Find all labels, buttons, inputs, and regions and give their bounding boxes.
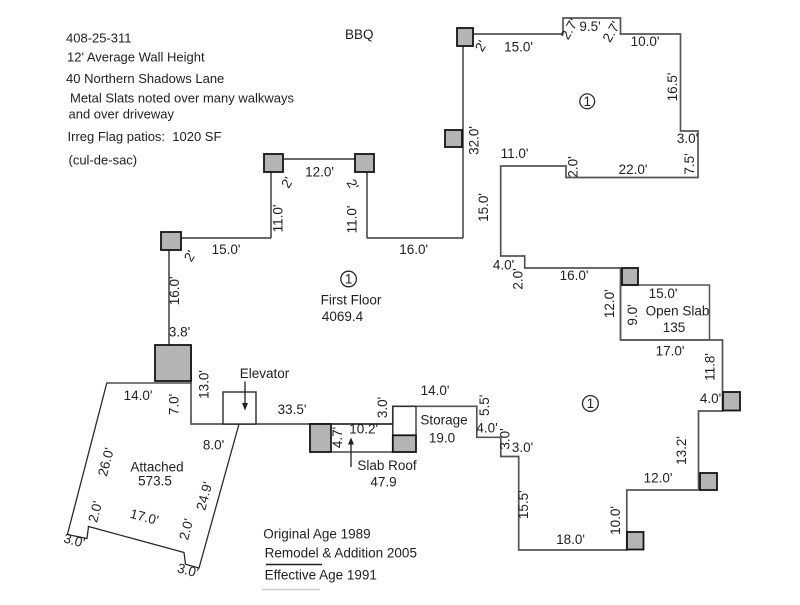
svg-text:13.0': 13.0' (197, 370, 212, 399)
svg-text:18.0': 18.0' (556, 532, 585, 547)
svg-text:40 Northern Shadows Lane: 40 Northern Shadows Lane (66, 71, 224, 86)
svg-text:135: 135 (663, 320, 686, 335)
svg-text:12.0': 12.0' (644, 471, 673, 486)
svg-text:Elevator: Elevator (240, 366, 290, 381)
svg-text:Effective Age 1991: Effective Age 1991 (265, 568, 377, 583)
svg-text:408-25-311: 408-25-311 (66, 31, 132, 46)
svg-text:15.5': 15.5' (516, 490, 531, 519)
svg-text:10.2': 10.2' (349, 422, 378, 437)
svg-text:Slab Roof: Slab Roof (357, 458, 417, 473)
svg-text:16.0': 16.0' (167, 276, 182, 305)
svg-text:3.0': 3.0' (512, 440, 533, 455)
svg-text:7.5': 7.5' (682, 153, 697, 174)
svg-text:11.0': 11.0' (501, 146, 529, 161)
svg-text:Irreg Flag patios: 1020 SF: Irreg Flag patios: 1020 SF (68, 129, 222, 144)
svg-text:3.8': 3.8' (169, 325, 190, 340)
svg-text:14.0': 14.0' (421, 383, 450, 398)
svg-text:2.0': 2.0' (511, 268, 526, 289)
svg-text:12.0': 12.0' (305, 165, 334, 180)
svg-text:10.0': 10.0' (608, 506, 623, 535)
svg-text:1: 1 (583, 94, 591, 109)
svg-text:16.0': 16.0' (560, 268, 589, 283)
svg-text:9.0': 9.0' (625, 304, 640, 325)
svg-text:(cul-de-sac): (cul-de-sac) (69, 153, 138, 168)
svg-text:4.7': 4.7' (330, 427, 345, 448)
svg-text:1: 1 (587, 396, 595, 411)
svg-text:4.0': 4.0' (476, 421, 497, 436)
svg-text:13.2': 13.2' (674, 436, 689, 465)
svg-text:47.9: 47.9 (370, 475, 396, 490)
svg-text:8.0': 8.0' (203, 438, 224, 453)
svg-text:2.0': 2.0' (566, 156, 581, 177)
svg-text:4.0': 4.0' (700, 391, 721, 406)
svg-text:17.0': 17.0' (656, 344, 685, 359)
svg-text:10.0': 10.0' (631, 34, 660, 49)
svg-text:15.0': 15.0' (504, 40, 533, 55)
svg-text:3.0': 3.0' (677, 131, 698, 146)
svg-text:and over driveway: and over driveway (69, 107, 175, 122)
svg-text:7.0': 7.0' (167, 394, 182, 415)
svg-text:32.0': 32.0' (467, 126, 482, 155)
svg-text:16.5': 16.5' (665, 73, 680, 102)
svg-text:15.0': 15.0' (212, 242, 241, 257)
svg-text:Storage: Storage (420, 413, 467, 428)
svg-text:4069.4: 4069.4 (322, 309, 364, 324)
svg-text:Metal Slats noted over many wa: Metal Slats noted over many walkways (70, 91, 294, 106)
svg-text:Original Age 1989: Original Age 1989 (263, 526, 370, 541)
svg-text:Remodel & Addition 2005: Remodel & Addition 2005 (265, 546, 417, 561)
svg-text:Open Slab: Open Slab (646, 304, 710, 319)
svg-text:3.0': 3.0' (375, 397, 390, 418)
svg-text:14.0': 14.0' (124, 388, 153, 403)
svg-text:16.0': 16.0' (399, 242, 428, 257)
svg-text:15.0': 15.0' (649, 286, 678, 301)
svg-text:22.0': 22.0' (619, 162, 648, 177)
svg-text:BBQ: BBQ (345, 27, 374, 42)
svg-text:5.5': 5.5' (477, 395, 492, 416)
svg-text:11.8': 11.8' (703, 353, 718, 381)
svg-text:11.0': 11.0' (345, 206, 360, 234)
svg-text:9.5': 9.5' (579, 19, 600, 34)
svg-text:15.0': 15.0' (476, 193, 491, 222)
svg-text:12' Average Wall Height: 12' Average Wall Height (67, 50, 205, 65)
svg-text:19.0: 19.0 (429, 431, 455, 446)
svg-text:1: 1 (345, 272, 353, 287)
svg-text:33.5': 33.5' (278, 402, 307, 417)
svg-text:11.0': 11.0' (271, 205, 286, 233)
svg-text:573.5: 573.5 (138, 474, 172, 489)
svg-text:First Floor: First Floor (321, 293, 382, 308)
svg-text:3.0': 3.0' (498, 428, 513, 449)
svg-text:Attached: Attached (130, 460, 183, 475)
svg-text:12.0': 12.0' (602, 289, 617, 318)
